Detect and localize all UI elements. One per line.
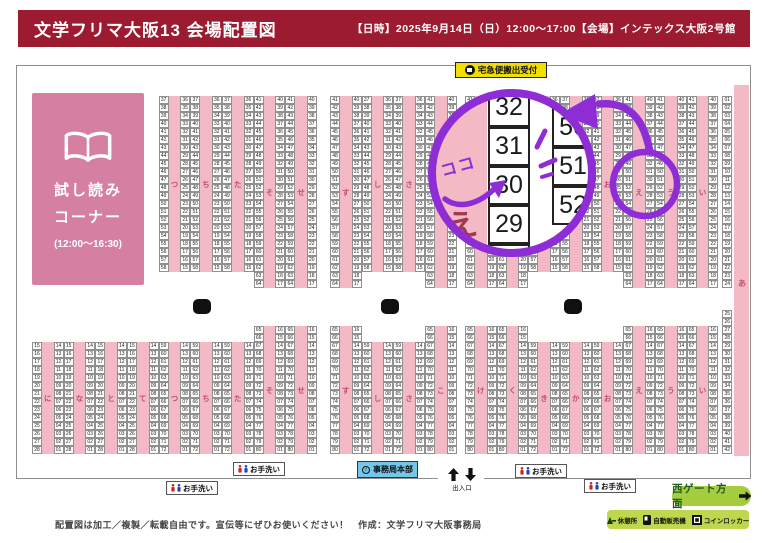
booth-cell: 11 [85, 366, 95, 374]
booth-cell: 24 [415, 192, 425, 200]
booth-column-さ: 3738394041424344454647484950515253545556… [393, 96, 425, 272]
booth-cell: 31 [352, 168, 362, 176]
booth-cell: 17 [180, 248, 190, 256]
booth-cell: 19 [275, 264, 285, 272]
aisle: た [232, 96, 244, 272]
booth-cell: 67 [528, 406, 538, 414]
booth-cell: 11 [582, 366, 592, 374]
booth-cell: 14 [212, 342, 222, 350]
booth-cell: 64 [285, 280, 295, 288]
booth-cell: 13 [54, 350, 64, 358]
aisle: う [665, 96, 677, 288]
booth-cell: 29 [645, 184, 655, 192]
booth-cell: 03 [447, 430, 457, 438]
booth-cell: 38 [677, 112, 687, 120]
booth-cell: 34 [722, 382, 732, 390]
booth-cell: 41 [362, 128, 372, 136]
booth-cell: 68 [425, 350, 435, 358]
booth-cell: 29 [352, 184, 362, 192]
booth-cell: 28 [32, 446, 42, 454]
booth-cell: 17 [447, 280, 457, 288]
aisle-label: せ [297, 187, 305, 198]
booth-cell: 24 [722, 280, 732, 288]
booth-cell: 33 [645, 152, 655, 160]
reading-corner-title-2: コーナー [54, 206, 122, 227]
booth-cell: 38 [352, 112, 362, 120]
booth-cell: 70 [393, 430, 403, 438]
booth-cell: 07 [352, 398, 362, 406]
booth-cell: 36 [677, 128, 687, 136]
booth-cell: 69 [362, 422, 372, 430]
booth-cell: 52 [222, 216, 232, 224]
booth-cell: 59 [159, 342, 169, 350]
booth-cell: 46 [362, 168, 372, 176]
booth-cell: 19 [307, 264, 317, 272]
booth-column-え: 65666768697071727374757677787980え1615141… [623, 326, 655, 454]
booth-cell: 53 [362, 224, 372, 232]
booth-cell: 37 [677, 120, 687, 128]
booth-cell: 46 [623, 136, 633, 144]
booth-cell: 18 [127, 366, 137, 374]
booth-cell: 47 [393, 176, 403, 184]
booth-cell: 71 [425, 374, 435, 382]
booth-cell: 63 [560, 374, 570, 382]
booth-cell: 06 [244, 406, 254, 414]
booth-cell: 33 [613, 120, 623, 128]
booth-cell: 19 [582, 232, 592, 240]
booth-cell: 44 [393, 152, 403, 160]
booth-cell: 62 [655, 264, 665, 272]
booth-cell: 29 [307, 184, 317, 192]
booth-cell: 10 [149, 374, 159, 382]
booth-cell: 03 [415, 430, 425, 438]
booth-cell: 53 [159, 224, 169, 232]
booth-cell: 16 [212, 256, 222, 264]
booth-cell: 16 [307, 326, 317, 334]
booth-cell: 56 [222, 248, 232, 256]
booth-cell: 47 [254, 144, 264, 152]
booth-cell: 40 [275, 96, 285, 104]
booth-cell: 24 [275, 224, 285, 232]
booth-cell: 06 [149, 406, 159, 414]
booth-cell: 07 [613, 398, 623, 406]
booth-column-つ: 5960616263646566676869707172つ14131211100… [159, 342, 191, 454]
booth-cell: 63 [159, 374, 169, 382]
booth-cell: 74 [425, 398, 435, 406]
booth-cell: 78 [497, 430, 507, 438]
booth-cell: 23 [64, 406, 74, 414]
booth-cell: 01 [722, 96, 732, 104]
booth-cell: 01 [415, 446, 425, 454]
booth-cell: 46 [330, 136, 340, 144]
booth-cell: 67 [393, 406, 403, 414]
booth-cell: 80 [465, 446, 475, 454]
booth-cell: 03 [212, 430, 222, 438]
aisle-label: な [76, 393, 84, 404]
booth-cell: 02 [447, 438, 457, 446]
booth-cell: 07 [180, 398, 190, 406]
booth-cell: 14 [117, 342, 127, 350]
booth-cell: 01 [447, 446, 457, 454]
booth-cell: 14 [487, 342, 497, 350]
booth-cell: 20 [447, 256, 457, 264]
booth-cell: 58 [393, 264, 403, 272]
booth-cell: 35 [275, 136, 285, 144]
booth-cell: 41 [655, 96, 665, 104]
aisle-label: い [699, 187, 707, 198]
booth-cell: 11 [117, 366, 127, 374]
booth-cell: 17 [95, 358, 105, 366]
booth-cell: 50 [362, 200, 372, 208]
booth-cell: 04 [447, 422, 457, 430]
booth-cell: 70 [190, 430, 200, 438]
booth-cell: 65 [285, 326, 295, 334]
booth-cell: 56 [623, 216, 633, 224]
booth-cell: 07 [677, 398, 687, 406]
booth-cell: 09 [54, 382, 64, 390]
booth-cell: 68 [362, 414, 372, 422]
booth-cell: 30 [645, 176, 655, 184]
booth-column-と: 1516171819202122232425262728と14131211100… [95, 342, 127, 454]
booth-cell: 48 [687, 152, 697, 160]
booth-cell: 72 [330, 382, 340, 390]
booth-cell: 05 [518, 414, 528, 422]
booth-cell: 42 [330, 104, 340, 112]
booth-cell: 15 [708, 334, 718, 342]
booth-cell: 45 [159, 160, 169, 168]
booth-cell: 19 [244, 232, 254, 240]
booth-cell: 27 [95, 438, 105, 446]
booth-cell: 08 [275, 390, 285, 398]
booth-cell: 18 [582, 240, 592, 248]
booth-cell: 11 [244, 366, 254, 374]
booth-cell: 38 [275, 112, 285, 120]
booth-cell: 73 [425, 390, 435, 398]
booth-cell: 75 [465, 406, 475, 414]
booth-cell: 33 [244, 120, 254, 128]
aisle-label: に [44, 393, 52, 404]
booth-cell: 70 [497, 366, 507, 374]
booth-cell: 30 [244, 144, 254, 152]
booth-cell: 37 [275, 120, 285, 128]
booth-cell: 38 [645, 112, 655, 120]
booth-cell: 61 [655, 256, 665, 264]
booth-cell: 49 [592, 192, 602, 200]
booth-cell: 46 [190, 168, 200, 176]
booth-cell: 36 [613, 96, 623, 104]
booth-cell: 01 [244, 446, 254, 454]
booth-cell: 34 [383, 112, 393, 120]
booth-cell: 11 [275, 366, 285, 374]
aisle: い [697, 96, 709, 288]
booth-cell: 12 [613, 358, 623, 366]
booth-cell: 28 [677, 192, 687, 200]
booth-cell: 71 [497, 374, 507, 382]
booth-cell: 23 [677, 232, 687, 240]
booth-cell: 02 [518, 438, 528, 446]
booth-cell: 46 [285, 136, 295, 144]
booth-cell: 29 [708, 184, 718, 192]
booth-cell: 11 [708, 366, 718, 374]
aisle-label: く [509, 385, 517, 396]
booth-cell: 07 [415, 398, 425, 406]
booth-cell: 74 [254, 398, 264, 406]
person-icon [520, 467, 524, 475]
booth-cell: 44 [330, 120, 340, 128]
booth-cell: 25 [95, 422, 105, 430]
booth-cell: 09 [415, 382, 425, 390]
booth-cell: 63 [362, 374, 372, 382]
footer-note: 配置図は加工／複製／転載自由です。宣伝等にぜひお使いください！ 作成：文学フリマ… [55, 518, 482, 531]
booth-cell: 56 [362, 248, 372, 256]
booth-cell: 05 [85, 414, 95, 422]
booth-cell: 39 [645, 104, 655, 112]
booth-cell: 61 [623, 256, 633, 264]
booth-cell: 04 [275, 422, 285, 430]
booth-cell: 23 [645, 232, 655, 240]
booth-cell: 03 [85, 430, 95, 438]
booth-cell: 26 [352, 208, 362, 216]
reading-corner-box: 試し読み コーナー (12:00～16:30) [32, 93, 144, 285]
booth-cell: 16 [275, 326, 285, 334]
booth-cell: 70 [655, 366, 665, 374]
west-gate-button[interactable]: 西ゲート方面 [672, 486, 751, 506]
booth-cell: 11 [677, 366, 687, 374]
booth-cell: 34 [307, 144, 317, 152]
booth-cell: 72 [393, 446, 403, 454]
booth-cell: 58 [159, 264, 169, 272]
booth-cell: 39 [159, 112, 169, 120]
booth-cell: 26 [275, 208, 285, 216]
legend-vending-machine: 自動販売機 [643, 515, 686, 525]
booth-cell: 16 [95, 350, 105, 358]
booth-cell: 05 [677, 414, 687, 422]
booth-cell: 18 [487, 272, 497, 280]
booth-cell: 79 [465, 438, 475, 446]
aisle-label: そ [266, 385, 274, 396]
booth-cell: 60 [362, 350, 372, 358]
booth-cell: 33 [415, 120, 425, 128]
booth-cell: 66 [362, 398, 372, 406]
booth-cell: 23 [275, 232, 285, 240]
booth-cell: 37 [362, 96, 372, 104]
booth-cell: 73 [497, 390, 507, 398]
booth-column-な: 1516171819202122232425262728な14131211100… [64, 342, 96, 454]
booth-cell: 49 [190, 192, 200, 200]
booth-cell: 79 [285, 438, 295, 446]
booth-cell: 03 [582, 430, 592, 438]
booth-cell: 18 [613, 240, 623, 248]
booth-cell: 01 [613, 446, 623, 454]
booth-cell: 36 [352, 128, 362, 136]
booth-cell: 03 [149, 430, 159, 438]
booth-cell: 64 [330, 280, 340, 288]
booth-cell: 64 [497, 280, 507, 288]
booth-cell: 21 [64, 390, 74, 398]
aisle: さ [403, 342, 415, 454]
booth-cell: 25 [415, 184, 425, 192]
booth-cell: 21 [708, 248, 718, 256]
person-icon [589, 482, 593, 490]
booth-cell: 70 [362, 430, 372, 438]
booth-cell: 25 [32, 422, 42, 430]
booth-cell: 64 [425, 280, 435, 288]
vending-machine-icon [643, 515, 651, 525]
booth-cell: 42 [285, 104, 295, 112]
booth-cell: 42 [190, 136, 200, 144]
booth-cell: 79 [687, 438, 697, 446]
booth-cell: 21 [307, 248, 317, 256]
booth-cell: 50 [222, 200, 232, 208]
booth-cell: 27 [708, 200, 718, 208]
booth-cell: 68 [687, 350, 697, 358]
booth-cell: 21 [95, 390, 105, 398]
booth-cell: 62 [560, 366, 570, 374]
booth-cell: 06 [212, 406, 222, 414]
booth-cell: 19 [95, 374, 105, 382]
booth-cell: 32 [415, 128, 425, 136]
booth-cell: 28 [307, 192, 317, 200]
booth-cell: 24 [244, 192, 254, 200]
booth-cell: 70 [687, 366, 697, 374]
booth-cell: 40 [645, 96, 655, 104]
booth-cell: 14 [582, 342, 592, 350]
booth-cell: 52 [330, 184, 340, 192]
aisle: あ [734, 85, 749, 456]
aisle: こ [435, 326, 447, 454]
booth-cell: 04 [383, 422, 393, 430]
booth-cell: 02 [180, 438, 190, 446]
booth-cell: 52 [393, 216, 403, 224]
booth-cell: 68 [623, 350, 633, 358]
booth-cell: 06 [550, 406, 560, 414]
booth-cell: 03 [518, 430, 528, 438]
booth-cell: 26 [613, 176, 623, 184]
booth-cell: 16 [722, 216, 732, 224]
booth-cell: 39 [677, 104, 687, 112]
booth-cell: 17 [645, 280, 655, 288]
booth-cell: 06 [275, 406, 285, 414]
booth-cell: 24 [677, 224, 687, 232]
booth-cell: 17 [415, 248, 425, 256]
booth-cell: 64 [254, 280, 264, 288]
booth-cell: 16 [487, 326, 497, 334]
booth-cell: 70 [159, 430, 169, 438]
booth-cell: 57 [285, 224, 295, 232]
booth-cell: 06 [645, 406, 655, 414]
booth-cell: 19 [32, 374, 42, 382]
booth-cell: 13 [307, 350, 317, 358]
booth-cell: 40 [352, 96, 362, 104]
booth-cell: 29 [677, 184, 687, 192]
booth-cell: 10 [518, 374, 528, 382]
booth-cell: 40 [307, 96, 317, 104]
booth-cell: 41 [687, 96, 697, 104]
takkyubin-pickup-label: 宅急便搬出受付 [455, 62, 547, 78]
booth-cell: 61 [560, 358, 570, 366]
booth-cell: 54 [687, 200, 697, 208]
booth-cell: 34 [415, 112, 425, 120]
booth-column-こ: 65666768697071727374757677787980こ1615141… [425, 326, 457, 454]
booth-cell: 18 [95, 366, 105, 374]
booth-cell: 42 [655, 104, 665, 112]
booth-cell: 14 [307, 342, 317, 350]
booth-cell: 22 [722, 264, 732, 272]
booth-cell: 02 [415, 438, 425, 446]
booth-cell: 59 [687, 240, 697, 248]
booth-cell: 06 [383, 406, 393, 414]
aisle: え [633, 326, 645, 454]
booth-cell: 06 [708, 406, 718, 414]
booth-cell: 29 [613, 152, 623, 160]
booth-cell: 68 [393, 414, 403, 422]
booth-cell: 09 [550, 382, 560, 390]
booth-cell: 46 [159, 168, 169, 176]
booth-cell: 12 [550, 358, 560, 366]
booth-cell: 77 [655, 422, 665, 430]
booth-cell: 71 [190, 438, 200, 446]
booth-cell: 60 [254, 248, 264, 256]
booth-cell: 25 [275, 216, 285, 224]
booth-cell: 79 [497, 438, 507, 446]
booth-cell: 14 [415, 342, 425, 350]
booth-cell: 25 [64, 422, 74, 430]
booth-cell: 36 [582, 96, 592, 104]
booth-cell: 09 [487, 382, 497, 390]
magnified-booth-cell: 32 [488, 92, 530, 127]
booth-cell: 47 [330, 144, 340, 152]
booth-cell: 46 [254, 136, 264, 144]
booth-cell: 67 [254, 342, 264, 350]
booth-cell: 57 [528, 256, 538, 264]
booth-cell: 62 [330, 264, 340, 272]
booth-cell: 61 [159, 358, 169, 366]
booth-cell: 65 [362, 390, 372, 398]
aisle: し [372, 342, 384, 454]
booth-cell: 15 [415, 264, 425, 272]
booth-cell: 48 [285, 152, 295, 160]
booth-cell: 39 [222, 112, 232, 120]
booth-cell: 54 [393, 232, 403, 240]
booth-cell: 35 [383, 104, 393, 112]
coin-locker-icon [692, 515, 702, 525]
booth-cell: 71 [285, 374, 295, 382]
booth-cell: 18 [708, 272, 718, 280]
booth-cell: 26 [383, 176, 393, 184]
booth-cell: 69 [222, 422, 232, 430]
booth-cell: 34 [180, 112, 190, 120]
booth-cell: 56 [393, 248, 403, 256]
booth-cell: 48 [592, 184, 602, 192]
booth-cell: 54 [190, 232, 200, 240]
booth-cell: 03 [487, 430, 497, 438]
booth-column-す: 65666768697071727374757677787980す1615141… [330, 326, 362, 454]
booth-cell: 04 [307, 422, 317, 430]
booth-cell: 59 [623, 240, 633, 248]
booth-cell: 02 [212, 438, 222, 446]
booth-cell: 53 [222, 224, 232, 232]
booth-column-て: 1516171819202122232425262728て14131211100… [127, 342, 159, 454]
restroom-text: お手洗い [601, 481, 631, 492]
booth-cell: 74 [285, 398, 295, 406]
booth-cell: 04 [85, 422, 95, 430]
booth-cell: 50 [254, 168, 264, 176]
booth-cell: 62 [362, 366, 372, 374]
booth-cell: 58 [560, 264, 570, 272]
booth-cell: 02 [550, 438, 560, 446]
right-arrow-icon [739, 491, 751, 501]
booth-cell: 03 [275, 430, 285, 438]
